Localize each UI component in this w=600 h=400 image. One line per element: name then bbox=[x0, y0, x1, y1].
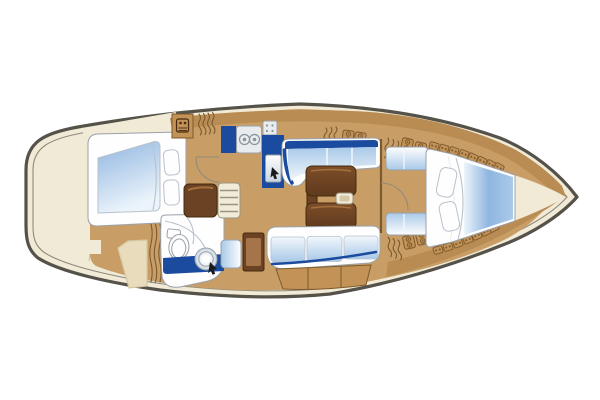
aft-pillow-1 bbox=[163, 149, 180, 175]
forward-cabinet-bottom bbox=[386, 213, 428, 235]
forward-cabinet-top bbox=[386, 147, 428, 170]
latch-box-symbol bbox=[402, 234, 415, 249]
nav-seat bbox=[221, 240, 241, 268]
companionway-steps bbox=[218, 183, 240, 218]
aft-pillow-2 bbox=[163, 180, 179, 206]
straight-settee-cushions bbox=[271, 236, 378, 262]
head-compartment bbox=[161, 214, 224, 287]
nav-desk-panel bbox=[246, 238, 261, 266]
galley-counter-left bbox=[221, 126, 236, 153]
galley-switch-panel bbox=[263, 121, 277, 135]
companionway-locker bbox=[172, 114, 193, 138]
settee-lockers bbox=[276, 265, 371, 290]
hull-notch bbox=[88, 240, 101, 254]
yacht-floor-plan bbox=[0, 0, 600, 400]
cupholder-slot bbox=[340, 196, 350, 202]
yacht-plan-stage bbox=[0, 0, 600, 400]
